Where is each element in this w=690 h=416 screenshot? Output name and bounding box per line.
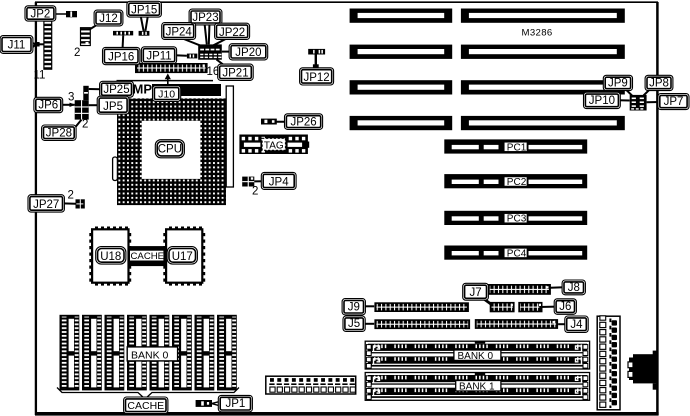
svg-text:2: 2 bbox=[82, 119, 88, 131]
svg-text:CACHE: CACHE bbox=[131, 251, 165, 262]
svg-text:U17: U17 bbox=[172, 251, 193, 263]
svg-text:JP7: JP7 bbox=[664, 96, 684, 108]
svg-text:PC2: PC2 bbox=[507, 177, 527, 188]
svg-text:JP5: JP5 bbox=[103, 101, 123, 113]
svg-text:J11: J11 bbox=[8, 40, 26, 52]
svg-text:2: 2 bbox=[74, 47, 80, 59]
svg-text:JP10: JP10 bbox=[589, 95, 615, 107]
svg-text:JP15: JP15 bbox=[131, 5, 157, 17]
svg-text:JP9: JP9 bbox=[608, 78, 628, 90]
svg-text:JP12: JP12 bbox=[303, 72, 329, 84]
svg-text:JP8: JP8 bbox=[649, 78, 669, 90]
svg-text:11: 11 bbox=[34, 70, 46, 82]
svg-text:JP6: JP6 bbox=[38, 100, 58, 112]
svg-text:TAG: TAG bbox=[264, 140, 284, 151]
svg-text:JP25: JP25 bbox=[103, 84, 129, 96]
svg-text:JP1: JP1 bbox=[225, 398, 245, 410]
svg-text:JP4: JP4 bbox=[269, 176, 289, 188]
svg-text:JP23: JP23 bbox=[192, 12, 218, 24]
svg-text:J4: J4 bbox=[570, 319, 583, 331]
svg-text:JP16: JP16 bbox=[108, 52, 134, 64]
svg-text:BANK 1: BANK 1 bbox=[459, 381, 495, 392]
svg-text:J7: J7 bbox=[470, 287, 482, 299]
svg-text:JP11: JP11 bbox=[146, 51, 171, 63]
svg-text:JP24: JP24 bbox=[166, 27, 193, 39]
svg-text:JP2: JP2 bbox=[30, 9, 50, 21]
svg-text:J8: J8 bbox=[568, 282, 580, 294]
svg-text:JP28: JP28 bbox=[46, 127, 72, 139]
svg-text:3: 3 bbox=[68, 92, 74, 104]
svg-text:JP22: JP22 bbox=[219, 27, 245, 39]
svg-text:JP20: JP20 bbox=[235, 47, 261, 59]
svg-text:PC3: PC3 bbox=[507, 214, 527, 225]
svg-text:J5: J5 bbox=[348, 318, 360, 330]
svg-text:PC1: PC1 bbox=[507, 142, 527, 153]
svg-text:2: 2 bbox=[68, 190, 74, 202]
svg-text:J6: J6 bbox=[559, 301, 571, 313]
svg-text:U18: U18 bbox=[100, 251, 121, 263]
svg-text:BANK 0: BANK 0 bbox=[131, 349, 169, 361]
svg-text:BANK 0: BANK 0 bbox=[458, 351, 494, 362]
svg-text:MP: MP bbox=[133, 82, 153, 97]
svg-text:JP27: JP27 bbox=[33, 199, 59, 211]
svg-text:2: 2 bbox=[252, 186, 258, 198]
svg-text:J12: J12 bbox=[99, 13, 118, 25]
svg-text:M3286: M3286 bbox=[522, 27, 553, 38]
svg-text:J10: J10 bbox=[158, 88, 175, 100]
svg-text:PC4: PC4 bbox=[507, 248, 527, 259]
svg-text:CPU: CPU bbox=[158, 144, 182, 156]
svg-text:J9: J9 bbox=[348, 302, 360, 314]
svg-text:CACHE: CACHE bbox=[127, 400, 164, 412]
svg-text:JP26: JP26 bbox=[290, 116, 316, 128]
svg-text:JP21: JP21 bbox=[222, 67, 248, 79]
